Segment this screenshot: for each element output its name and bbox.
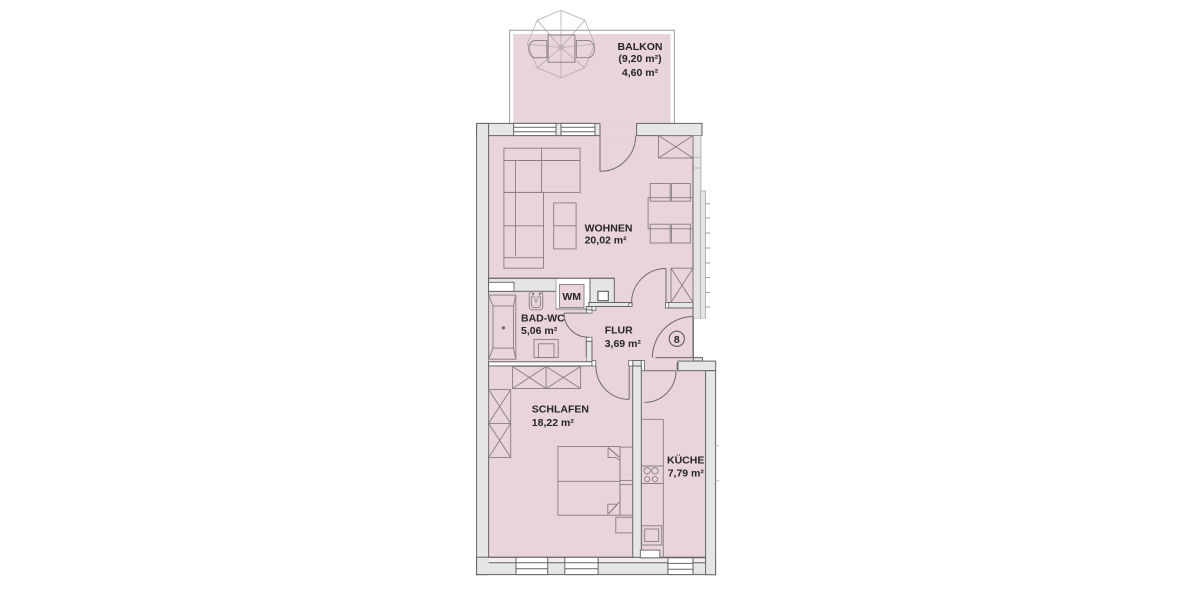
svg-text:8: 8 bbox=[674, 334, 680, 346]
svg-text:3,69 m²: 3,69 m² bbox=[605, 338, 642, 350]
svg-text:4,60 m²: 4,60 m² bbox=[622, 67, 659, 79]
svg-text:(9,20 m²): (9,20 m²) bbox=[618, 53, 661, 65]
svg-text:BALKON: BALKON bbox=[618, 41, 663, 53]
svg-text:20,02 m²: 20,02 m² bbox=[585, 235, 628, 247]
svg-text:18,22 m²: 18,22 m² bbox=[532, 417, 575, 429]
svg-text:5,06 m²: 5,06 m² bbox=[521, 325, 558, 337]
svg-text:WM: WM bbox=[562, 291, 581, 303]
svg-text:BAD-WC: BAD-WC bbox=[521, 313, 565, 325]
svg-text:SCHLAFEN: SCHLAFEN bbox=[532, 404, 589, 416]
svg-text:KÜCHE: KÜCHE bbox=[667, 454, 704, 467]
svg-text:FLUR: FLUR bbox=[605, 325, 633, 337]
svg-text:WOHNEN: WOHNEN bbox=[585, 222, 633, 234]
svg-text:7,79 m²: 7,79 m² bbox=[668, 468, 705, 480]
